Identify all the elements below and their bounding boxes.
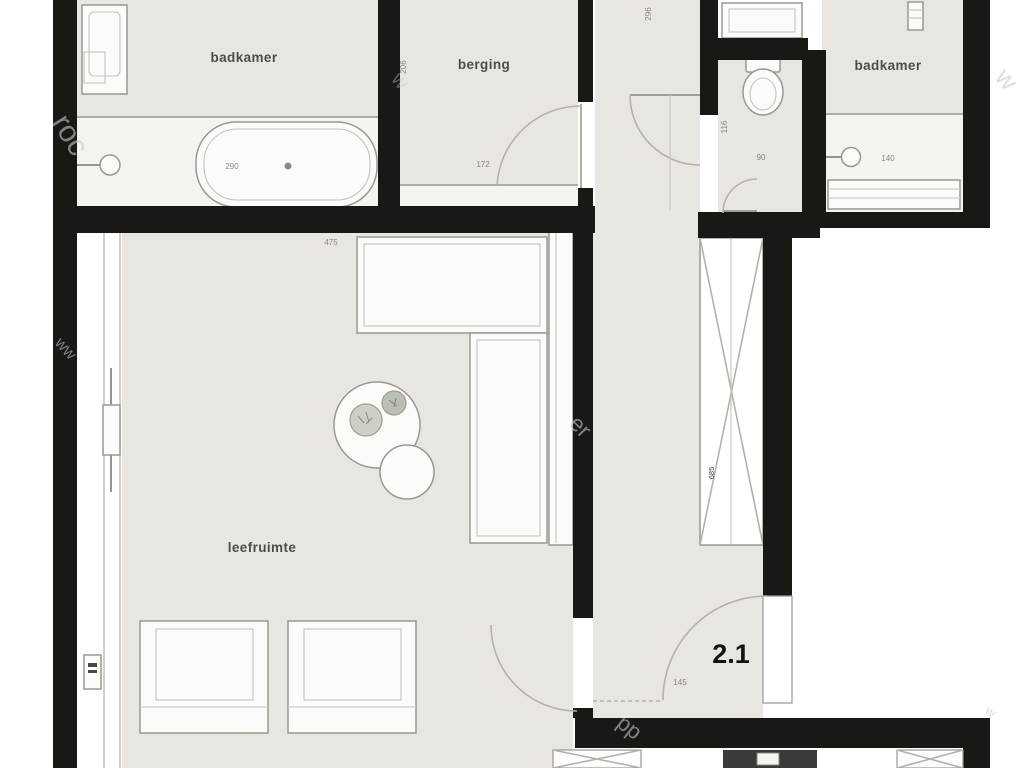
kitchen-dim: 475 [324, 238, 338, 247]
bathroom-cabinet-icon [828, 180, 960, 209]
berging-door-opening [578, 102, 593, 188]
common-corridor [553, 750, 963, 768]
wc-fixtures [743, 58, 783, 115]
berging-floor [400, 0, 578, 207]
hall-top-dim: 296 [644, 7, 653, 21]
basin-tap2-icon [842, 148, 861, 167]
basin-tap-icon [100, 155, 120, 175]
technical-shaft [700, 238, 763, 545]
floorplan: badkamer berging badkamer leefruimte 2.1… [0, 0, 1024, 768]
leefruimte-label: leefruimte [228, 540, 297, 555]
hallway-floor [593, 212, 700, 718]
entry-door-leaf [763, 596, 792, 703]
living-door-opening [573, 618, 593, 708]
sofa-right [288, 621, 416, 733]
badkamer-right-label: badkamer [855, 58, 922, 73]
entry-door-dim: 145 [673, 678, 687, 687]
bathtub-drain-icon [285, 163, 292, 170]
hall-nook-floor [595, 0, 700, 212]
radiator-icon [908, 2, 923, 30]
plant-icon [350, 404, 382, 436]
kitchen-counter-side [470, 333, 547, 543]
kitchen-counter-top [357, 237, 547, 333]
plant2-icon [382, 391, 406, 415]
unit-number: 2.1 [712, 639, 750, 669]
wc-depth-dim: 116 [720, 120, 729, 133]
sofa-left [140, 621, 268, 733]
washer-nook [722, 3, 802, 38]
window-handle-icon [103, 405, 120, 455]
toilet-icon [743, 69, 783, 115]
shaft-dim: 685 [707, 467, 716, 480]
bathtub-dim: 290 [225, 162, 239, 171]
berging-label: berging [458, 57, 510, 72]
wc-width-dim: 90 [757, 153, 766, 162]
berging-wetzone [400, 186, 578, 207]
side-table-icon [380, 445, 434, 499]
berging-door-dim: 172 [476, 160, 490, 169]
basin-dim: 140 [881, 154, 895, 163]
washing-machine-icon [722, 3, 802, 38]
hallway-entry-floor [700, 545, 763, 718]
kitchen-counter-wall-strip [549, 230, 573, 545]
badkamer-left-label: badkamer [211, 50, 278, 65]
